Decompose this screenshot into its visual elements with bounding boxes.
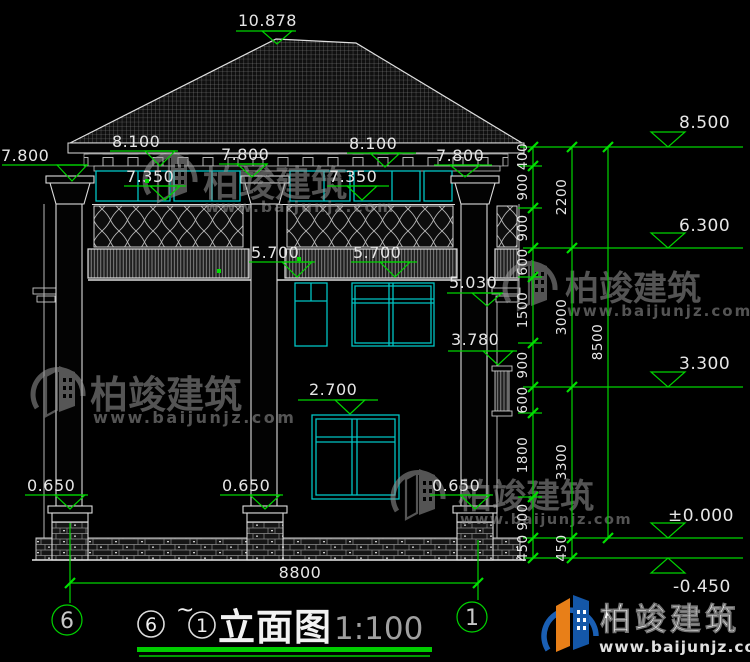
elev-peak: 10.878 xyxy=(238,11,297,30)
dim-3000: 3000 xyxy=(554,299,570,335)
molding xyxy=(37,296,55,302)
first-floor-window xyxy=(312,415,399,499)
elev-pedestal-1: 0.650 xyxy=(222,476,270,495)
window-1f xyxy=(312,415,399,499)
balcony-band xyxy=(88,249,249,278)
window-1f-inner xyxy=(316,419,395,495)
elev-corbel: 3.780 xyxy=(451,330,499,349)
capital-abacus xyxy=(451,176,499,183)
level-triangle xyxy=(651,558,685,573)
elev-eave-0: 7.800 xyxy=(1,146,49,165)
title-axis-to: 1 xyxy=(196,615,208,637)
elev-balcony-1: 5.700 xyxy=(353,243,401,262)
width-dim-text: 8800 xyxy=(279,563,322,582)
elev-clerestory-1: 7.350 xyxy=(329,167,377,186)
elev-window1: 2.700 xyxy=(309,380,357,399)
axis-number-left: 6 xyxy=(60,609,74,634)
title-tilde: ~ xyxy=(176,598,194,623)
brand-logo: 柏竣建筑 www.baijunjz.com xyxy=(544,595,750,656)
dim-900c: 900 xyxy=(515,351,531,378)
elev-eave-1: 8.100 xyxy=(112,132,160,151)
elev-balcony-0: 5.700 xyxy=(251,243,299,262)
brand-name: 柏竣建筑 xyxy=(600,602,740,638)
dim-900a: 900 xyxy=(515,173,531,200)
window-2f-left-mullions xyxy=(295,283,327,301)
hip-roof xyxy=(70,39,522,143)
grip-dot xyxy=(145,179,149,183)
grip-dot xyxy=(297,257,301,261)
flag-triangle xyxy=(335,400,365,414)
title-name: 立面图 xyxy=(218,606,332,649)
window-2f-right-mullions xyxy=(352,283,434,346)
elev-eave-4: 7.800 xyxy=(436,146,484,165)
dim-1800: 1800 xyxy=(515,437,531,473)
level-m0450: -0.450 xyxy=(673,577,731,597)
elev-eave-3: 8.100 xyxy=(349,134,397,153)
level-triangle xyxy=(651,372,685,387)
elev-clerestory-0: 7.350 xyxy=(126,167,174,186)
shaft xyxy=(56,204,82,506)
base-neck xyxy=(52,513,88,522)
right-corbel xyxy=(492,366,512,416)
window-1f-mullions xyxy=(316,419,395,495)
elev-pedestal-2: 0.650 xyxy=(432,476,480,495)
dim-1500: 1500 xyxy=(515,292,531,328)
logo-building-orange xyxy=(556,598,570,652)
elevation-drawing: 柏竣建筑 www.baijunjz.com 柏竣建筑 www.baijunjz.… xyxy=(0,0,750,662)
cad-canvas: 柏竣建筑 www.baijunjz.com 柏竣建筑 www.baijunjz.… xyxy=(0,0,750,662)
axis-number-right: 1 xyxy=(465,606,479,631)
dim-450b: 450 xyxy=(554,534,570,561)
column-center xyxy=(241,176,289,560)
base-neck xyxy=(247,513,283,522)
second-floor-windows xyxy=(295,283,434,346)
level-6300: 6.300 xyxy=(679,216,730,236)
elev-eave-2: 7.800 xyxy=(221,145,269,164)
dim-8500: 8500 xyxy=(590,324,606,360)
clerestory-window xyxy=(424,171,452,201)
watermark-bottom-right: 柏竣建筑 www.baijunjz.com xyxy=(393,469,632,528)
title-scale: 1:100 xyxy=(334,611,423,647)
pedestal xyxy=(247,522,283,560)
corbel-body xyxy=(495,371,509,411)
level-8500: 8.500 xyxy=(679,113,730,133)
logo-building-blue xyxy=(573,595,589,650)
title-underline-thick xyxy=(137,647,432,652)
watermark-url: www.baijunjz.com xyxy=(460,512,632,528)
corbel-cap xyxy=(492,366,512,371)
dim-3300: 3300 xyxy=(554,444,570,480)
dim-400: 400 xyxy=(515,143,531,170)
dim-450a: 450 xyxy=(515,534,531,561)
elev-pedestal-0: 0.650 xyxy=(27,476,75,495)
watermark-url: www.baijunjz.com xyxy=(205,198,395,216)
lattice-panel-side xyxy=(497,206,517,247)
level-triangle xyxy=(651,132,685,147)
watermark-url: www.baijunjz.com xyxy=(93,408,296,427)
dim-2200: 2200 xyxy=(554,179,570,215)
grip-dot xyxy=(217,269,221,273)
level-3300: 3.300 xyxy=(679,354,730,374)
dim-900b: 900 xyxy=(515,214,531,241)
title-axis-from: 6 xyxy=(145,614,157,636)
dim-900d: 900 xyxy=(515,503,531,530)
watermark-right-upper: 柏竣建筑 www.baijunjz.com xyxy=(505,260,750,320)
shaft xyxy=(461,204,487,506)
brand-url: www.baijunjz.com xyxy=(599,638,750,656)
dim-600a: 600 xyxy=(515,248,531,275)
corbel-base xyxy=(492,411,512,416)
molding xyxy=(33,288,57,294)
elev-slab2: 5.030 xyxy=(449,273,497,292)
watermark-url: www.baijunjz.com xyxy=(567,302,750,320)
drawing-title: 6 ~ 1 立面图 1:100 xyxy=(137,598,432,656)
dim-600b: 600 xyxy=(515,386,531,413)
capital xyxy=(455,183,495,204)
capital xyxy=(50,183,90,204)
roof-surface xyxy=(70,39,522,143)
